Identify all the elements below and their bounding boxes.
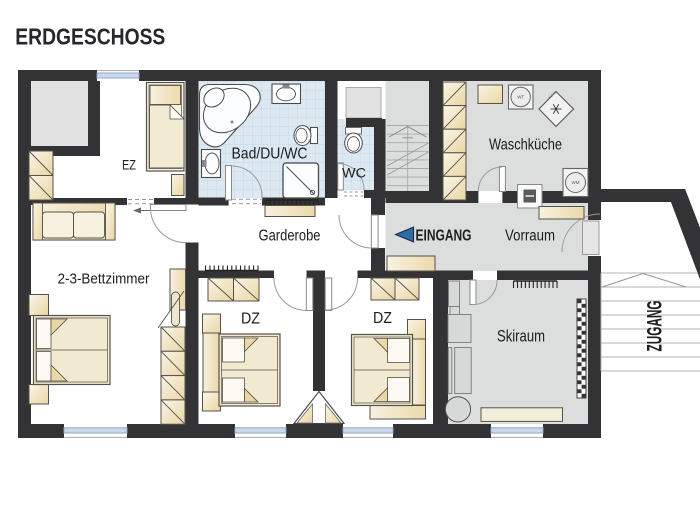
svg-text:WM: WM <box>572 180 580 185</box>
svg-text:DZ: DZ <box>373 310 392 327</box>
svg-text:EZ: EZ <box>122 158 136 173</box>
svg-text:ZUGANG: ZUGANG <box>643 301 667 352</box>
svg-text:DZ: DZ <box>241 311 260 328</box>
svg-text:Waschküche: Waschküche <box>489 137 562 154</box>
svg-text:Bad/DU/WC: Bad/DU/WC <box>232 146 308 163</box>
svg-text:2-3-Bettzimmer: 2-3-Bettzimmer <box>58 271 150 288</box>
svg-text:EINGANG: EINGANG <box>416 227 472 244</box>
svg-text:Skiraum: Skiraum <box>497 328 545 346</box>
svg-text:Vorraum: Vorraum <box>505 228 555 245</box>
svg-text:ERDGESCHOSS: ERDGESCHOSS <box>15 24 165 50</box>
svg-text:WT: WT <box>517 95 524 100</box>
svg-text:WC: WC <box>342 165 366 181</box>
svg-text:Garderobe: Garderobe <box>259 228 321 245</box>
